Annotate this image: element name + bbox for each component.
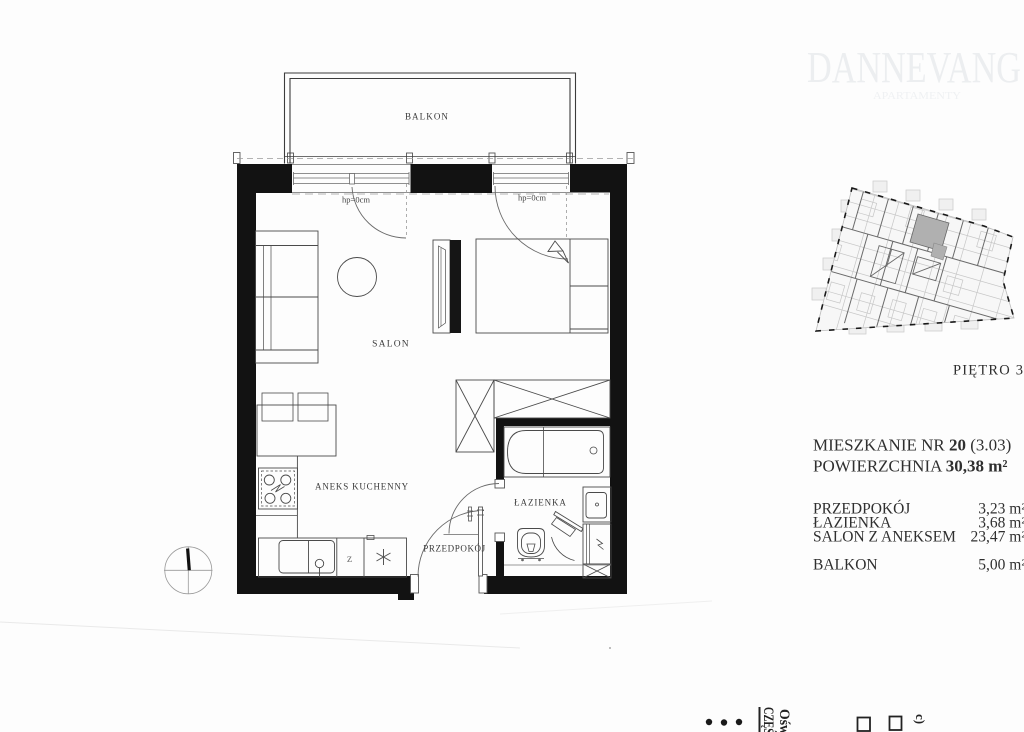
svg-text:hp=0cm: hp=0cm (518, 193, 546, 203)
svg-text:CZĘŚ: CZĘŚ (760, 707, 777, 732)
svg-text:23,47 m²: 23,47 m² (971, 529, 1024, 546)
svg-text:SALON: SALON (372, 340, 410, 350)
svg-text:APARTAMENTY: APARTAMENTY (873, 91, 961, 102)
svg-text:Ośw: Ośw (776, 709, 792, 732)
svg-text:SALON Z ANEKSEM: SALON Z ANEKSEM (813, 529, 956, 546)
svg-text:PIĘTRO 3: PIĘTRO 3 (953, 363, 1024, 379)
svg-text:POWIERZCHNIA 30,38 m²: POWIERZCHNIA 30,38 m² (813, 457, 1007, 476)
svg-text:PRZEDPOKÓJ: PRZEDPOKÓJ (423, 544, 486, 554)
svg-text:c): c) (913, 714, 928, 724)
svg-text:MIESZKANIE NR 20 (3.03): MIESZKANIE NR 20 (3.03) (813, 436, 1011, 455)
svg-text:hp=0cm: hp=0cm (342, 195, 370, 205)
svg-text:DANNEVANG: DANNEVANG (807, 43, 1021, 92)
svg-text:z: z (347, 551, 352, 565)
svg-text:BALKON: BALKON (813, 557, 878, 574)
svg-text:ŁAZIENKA: ŁAZIENKA (514, 498, 567, 508)
svg-text:5,00 m²: 5,00 m² (978, 557, 1024, 574)
svg-text:ANEKS KUCHENNY: ANEKS KUCHENNY (315, 482, 409, 492)
svg-text:BALKON: BALKON (405, 112, 449, 122)
